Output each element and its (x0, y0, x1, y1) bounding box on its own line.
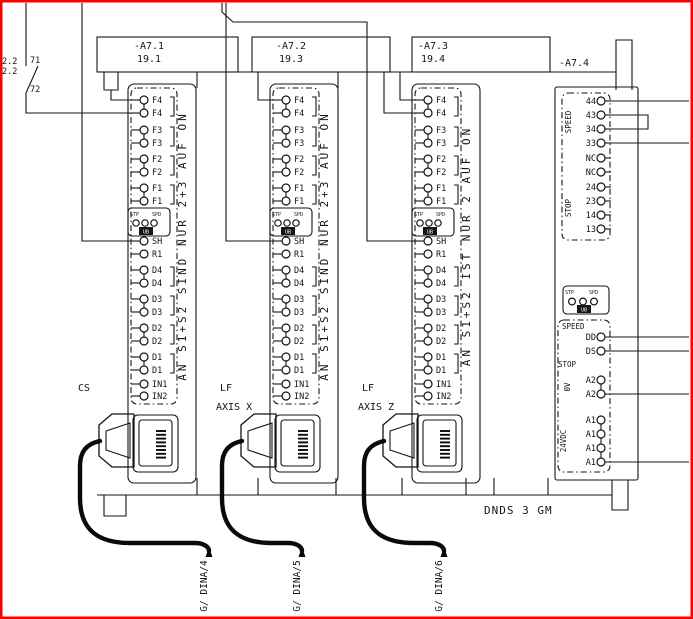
contact-circle (597, 154, 605, 162)
pair-bracket (312, 267, 316, 286)
contact-71-label: 71 (30, 56, 40, 66)
contact-circle (597, 125, 605, 133)
terminal-circle (424, 155, 432, 163)
frame-top (0, 0, 693, 3)
wire-m1-f4-feed (111, 90, 140, 100)
module-outline (555, 87, 638, 480)
contact-label: 24 (586, 183, 596, 193)
module-a73: -A7.319.4AN S1+S2 IST NUR 2 AUF ONF4F4F3… (358, 37, 550, 612)
contact-circle (597, 139, 605, 147)
terminal-circle (424, 250, 432, 258)
terminal-circle (282, 126, 290, 134)
pair-bracket (454, 354, 458, 373)
terminal-circle (597, 333, 605, 341)
terminal-circle (140, 366, 148, 374)
terminal-label: F4 (294, 109, 304, 119)
led-lamp (417, 220, 423, 226)
contact-circle (597, 97, 605, 105)
module-a74: -A7.4 SPEED STOP STP SPD UB SPEED STOP 0… (555, 58, 689, 480)
schematic-canvas: -A7.119.1AN S1+S2 SIND NUR 2+3 AUF ONF4F… (0, 0, 693, 619)
terminal-circle (282, 392, 290, 400)
module-side-note: AN S1+S2 SIND NUR 2+3 AUF ON (176, 111, 189, 380)
terminal-circle (282, 237, 290, 245)
terminal-circle (424, 126, 432, 134)
wiring-diagram: -A7.119.1AN S1+S2 SIND NUR 2+3 AUF ONF4F… (0, 0, 693, 619)
terminal-label: F1 (294, 184, 304, 194)
terminal-label: DS (586, 347, 596, 357)
terminal-circle (597, 347, 605, 355)
plug-shell-inner (106, 423, 130, 458)
terminal-circle (424, 308, 432, 316)
contact-label: 33 (586, 139, 596, 149)
pair-bracket (454, 156, 458, 175)
xref-top: 2.2 (2, 57, 17, 67)
terminal-label: D1 (294, 353, 304, 363)
terminal-label: F3 (436, 126, 446, 136)
led-spd-label: SPD (436, 212, 445, 218)
terminal-label: A1 (586, 430, 596, 440)
terminal-circle (140, 237, 148, 245)
cable-ref-label: G/ DINA/6 (434, 560, 445, 612)
led-spd-label: SPD (152, 212, 161, 218)
pair-bracket (170, 325, 174, 344)
terminal-label: D3 (152, 295, 162, 305)
cable (80, 441, 209, 551)
terminal-circle (140, 295, 148, 303)
led-lamp (591, 298, 598, 305)
pair-bracket (454, 325, 458, 344)
terminal-circle (424, 295, 432, 303)
pair-bracket (454, 185, 458, 204)
terminal-circle (424, 353, 432, 361)
terminal-circle (282, 96, 290, 104)
terminal-label: D4 (152, 266, 162, 276)
pair-bracket (312, 325, 316, 344)
terminal-circle (140, 197, 148, 205)
contact-circle (597, 197, 605, 205)
terminal-circle (424, 168, 432, 176)
terminal-label: F3 (436, 139, 446, 149)
module-tag-line1: LF (220, 383, 232, 394)
terminal-circle (282, 250, 290, 258)
terminal-circle (140, 266, 148, 274)
terminal-label: A1 (586, 444, 596, 454)
terminal-circle (140, 109, 148, 117)
frame-left (0, 0, 3, 619)
terminal-circle (282, 197, 290, 205)
terminal-label: F2 (152, 155, 162, 165)
module-header-box (252, 37, 390, 72)
led-ub-label: UB (285, 230, 291, 236)
terminal-label: D1 (436, 366, 446, 376)
led-ub-label: UB (143, 230, 149, 236)
terminal-label: A1 (586, 458, 596, 468)
module-name: -A7.3 (418, 41, 448, 52)
terminal-circle (424, 324, 432, 332)
terminal-circle (424, 337, 432, 345)
contact-label: NC (586, 168, 596, 178)
terminal-label: IN2 (294, 392, 309, 402)
module-tag-line2: AXIS Z (358, 402, 394, 413)
terminal-label: D2 (152, 337, 162, 347)
plug-shell (99, 414, 134, 467)
module-header-box (97, 37, 238, 72)
pair-bracket (170, 97, 174, 116)
contact-circle (597, 211, 605, 219)
modules-group: -A7.119.1AN S1+S2 SIND NUR 2+3 AUF ONF4F… (78, 37, 550, 612)
terminal-circle (597, 430, 605, 438)
terminal-label: A2 (586, 390, 596, 400)
led-lamp (426, 220, 432, 226)
terminal-label: D2 (436, 337, 446, 347)
terminal-circle (140, 380, 148, 388)
led-lamp (569, 298, 576, 305)
contact-label: 14 (586, 211, 596, 221)
terminal-label: D4 (436, 279, 446, 289)
terminal-circle (597, 444, 605, 452)
terminal-circle (140, 96, 148, 104)
terminal-label: DD (586, 333, 596, 343)
terminal-circle (424, 139, 432, 147)
terminal-label: SH (152, 237, 162, 247)
terminal-label: F4 (436, 109, 446, 119)
bottom-left-notch (104, 495, 126, 516)
terminal-label: D2 (152, 324, 162, 334)
led-stp-label: STP (414, 212, 423, 218)
contact-circle (597, 225, 605, 233)
pair-bracket (312, 97, 316, 116)
led-lamp (284, 220, 290, 226)
terminal-circle (140, 155, 148, 163)
terminal-circle (424, 279, 432, 287)
m4-top-notch (616, 40, 632, 90)
led-lamp (275, 220, 281, 226)
terminal-circle (282, 279, 290, 287)
terminal-label: F2 (152, 168, 162, 178)
terminal-circle (140, 139, 148, 147)
terminal-label: SH (436, 237, 446, 247)
pair-bracket (170, 296, 174, 315)
pair-bracket (454, 296, 458, 315)
terminal-label: IN1 (436, 380, 451, 390)
module-sheet-ref: 19.3 (279, 54, 303, 65)
terminal-circle (140, 392, 148, 400)
terminal-label: D3 (152, 308, 162, 318)
terminal-circle (140, 337, 148, 345)
terminal-label: IN2 (436, 392, 451, 402)
a2-note-label: 0V (563, 382, 572, 392)
led-stp-label: STP (565, 290, 574, 296)
terminal-label: IN2 (152, 392, 167, 402)
contact-circle (597, 183, 605, 191)
module-tag-line2: AXIS X (216, 402, 252, 413)
module-name: -A7.2 (276, 41, 306, 52)
led-stp-label: STP (272, 212, 281, 218)
terminal-circle (282, 155, 290, 163)
led-stp-label: STP (130, 212, 139, 218)
terminal-label: F2 (436, 155, 446, 165)
terminal-circle (424, 184, 432, 192)
led-box: STP SPD UB (563, 286, 609, 314)
pair-bracket (170, 354, 174, 373)
terminal-circle (140, 250, 148, 258)
section-stop-label: STOP (558, 360, 577, 369)
terminal-label: A2 (586, 376, 596, 386)
terminal-circle (597, 390, 605, 398)
terminal-circle (282, 380, 290, 388)
terminal-label: F3 (294, 139, 304, 149)
contact-label: 34 (586, 125, 596, 135)
section-speed-label: SPEED (562, 322, 585, 331)
module-tag-line1: LF (362, 383, 374, 394)
terminal-label: F1 (436, 184, 446, 194)
terminal-label: F4 (152, 109, 162, 119)
relay-stop-label: STOP (564, 198, 573, 217)
led-lamp (133, 220, 139, 226)
terminal-label: SH (294, 237, 304, 247)
terminal-label: F3 (294, 126, 304, 136)
terminal-circle (424, 96, 432, 104)
pair-bracket (312, 156, 316, 175)
terminal-label: D3 (436, 308, 446, 318)
connector-socket-inner (281, 420, 314, 466)
module-name: -A7.1 (134, 41, 164, 52)
terminal-label: D4 (294, 279, 304, 289)
cable-ref-label: G/ DINA/5 (292, 560, 303, 611)
terminal-circle (282, 353, 290, 361)
terminal-circle (424, 197, 432, 205)
terminal-circle (140, 308, 148, 316)
contact-72-label: 72 (30, 85, 40, 95)
pair-bracket (312, 127, 316, 146)
cable (222, 441, 302, 551)
terminal-label: F2 (294, 155, 304, 165)
terminal-label: F4 (436, 96, 446, 106)
terminal-label: D1 (152, 353, 162, 363)
terminal-circle (597, 458, 605, 466)
jumper-43-34 (605, 115, 648, 129)
terminal-circle (424, 380, 432, 388)
terminal-circle (140, 184, 148, 192)
terminal-circle (597, 416, 605, 424)
module-sheet-ref: 19.4 (421, 54, 445, 65)
wire-m2-sh (226, 3, 282, 241)
m4-bottom-notch (612, 480, 628, 510)
terminal-label: R1 (436, 250, 446, 260)
terminal-label: D1 (152, 366, 162, 376)
contact-label: 44 (586, 97, 596, 107)
module-tag-line1: CS (78, 383, 90, 394)
terminal-label: F1 (152, 184, 162, 194)
terminal-label: D3 (294, 295, 304, 305)
module-side-note: AN S1+S2 SIND NUR 2+3 AUF ON (318, 111, 331, 380)
module-a71: -A7.119.1AN S1+S2 SIND NUR 2+3 AUF ONF4F… (78, 37, 238, 612)
pair-bracket (170, 267, 174, 286)
terminal-label: F2 (294, 168, 304, 178)
led-lamp (151, 220, 157, 226)
led-lamp (580, 298, 587, 305)
contact-label: NC (586, 154, 596, 164)
terminal-label: IN1 (152, 380, 167, 390)
terminal-circle (140, 126, 148, 134)
terminal-label: F3 (152, 139, 162, 149)
terminal-label: F2 (436, 168, 446, 178)
terminal-circle (424, 266, 432, 274)
terminal-circle (282, 337, 290, 345)
terminal-circle (282, 295, 290, 303)
terminal-circle (282, 109, 290, 117)
module-sheet-ref: 19.1 (137, 54, 161, 65)
module-side-note: AN S1+S2 IST NUR 2 AUF ON (460, 126, 473, 367)
pair-bracket (170, 185, 174, 204)
led-lamp (142, 220, 148, 226)
pair-bracket (454, 97, 458, 116)
plug-shell (383, 414, 418, 467)
plug-shell (241, 414, 276, 467)
wire-m3-f4b-feed (384, 72, 424, 113)
terminal-label: IN1 (294, 380, 309, 390)
unit-label: DNDS 3 GM (484, 504, 553, 517)
terminal-label: D4 (152, 279, 162, 289)
terminal-label: F1 (436, 197, 446, 207)
contact-label: 23 (586, 197, 596, 207)
pair-bracket (170, 156, 174, 175)
terminal-label: D4 (436, 266, 446, 276)
terminal-circle (140, 324, 148, 332)
terminal-circle (282, 366, 290, 374)
terminal-circle (282, 168, 290, 176)
module-a72: -A7.219.3AN S1+S2 SIND NUR 2+3 AUF ONF4F… (216, 37, 390, 612)
led-spd-label: SPD (294, 212, 303, 218)
led-spd-label: SPD (589, 290, 598, 296)
terminal-circle (424, 109, 432, 117)
xref-bottom: 2.2 (2, 67, 17, 77)
led-lamp (293, 220, 299, 226)
contact-circle (597, 168, 605, 176)
led-lamp (435, 220, 441, 226)
contact-label: 13 (586, 225, 596, 235)
module-name: -A7.4 (559, 58, 589, 69)
terminal-label: F1 (152, 197, 162, 207)
top-left-notch (104, 72, 118, 90)
terminal-label: D1 (436, 353, 446, 363)
pair-bracket (454, 127, 458, 146)
connector-socket-outer (133, 415, 178, 472)
terminal-circle (597, 376, 605, 384)
terminal-label: A1 (586, 416, 596, 426)
contact-circle (597, 111, 605, 119)
terminal-label: D2 (436, 324, 446, 334)
terminal-label: D2 (294, 324, 304, 334)
wire-switch-bottom (26, 93, 140, 113)
terminal-label: F4 (294, 96, 304, 106)
terminal-circle (424, 392, 432, 400)
terminal-circle (424, 366, 432, 374)
terminal-circle (282, 139, 290, 147)
terminal-label: D4 (294, 266, 304, 276)
terminal-circle (282, 266, 290, 274)
pair-bracket (312, 296, 316, 315)
connector-socket-outer (275, 415, 320, 472)
terminal-circle (140, 168, 148, 176)
terminal-label: F3 (152, 126, 162, 136)
pair-bracket (170, 127, 174, 146)
terminal-label: F4 (152, 96, 162, 106)
terminal-circle (282, 184, 290, 192)
pair-bracket (312, 354, 316, 373)
relay-speed-label: SPEED (564, 110, 573, 133)
terminal-label: R1 (152, 250, 162, 260)
plug-shell-inner (248, 423, 272, 458)
terminal-circle (282, 308, 290, 316)
terminal-label: F1 (294, 197, 304, 207)
terminal-circle (140, 353, 148, 361)
connector-socket-inner (139, 420, 172, 466)
connector-socket-outer (417, 415, 462, 472)
terminal-circle (424, 237, 432, 245)
terminal-label: D3 (436, 295, 446, 305)
plug-shell-inner (390, 423, 414, 458)
connector-socket-inner (423, 420, 456, 466)
terminal-label: D2 (294, 337, 304, 347)
terminal-circle (282, 324, 290, 332)
contact-label: 43 (586, 111, 596, 121)
terminal-label: D1 (294, 366, 304, 376)
terminal-circle (140, 279, 148, 287)
pair-bracket (454, 267, 458, 286)
pair-bracket (312, 185, 316, 204)
terminal-label: R1 (294, 250, 304, 260)
led-ub-label: UB (427, 230, 433, 236)
cable (364, 441, 444, 551)
cable-ref-label: G/ DINA/4 (199, 560, 210, 612)
led-ub-label: UB (581, 308, 587, 314)
terminal-label: D3 (294, 308, 304, 318)
a1-note-label: 24VDC (559, 430, 568, 453)
